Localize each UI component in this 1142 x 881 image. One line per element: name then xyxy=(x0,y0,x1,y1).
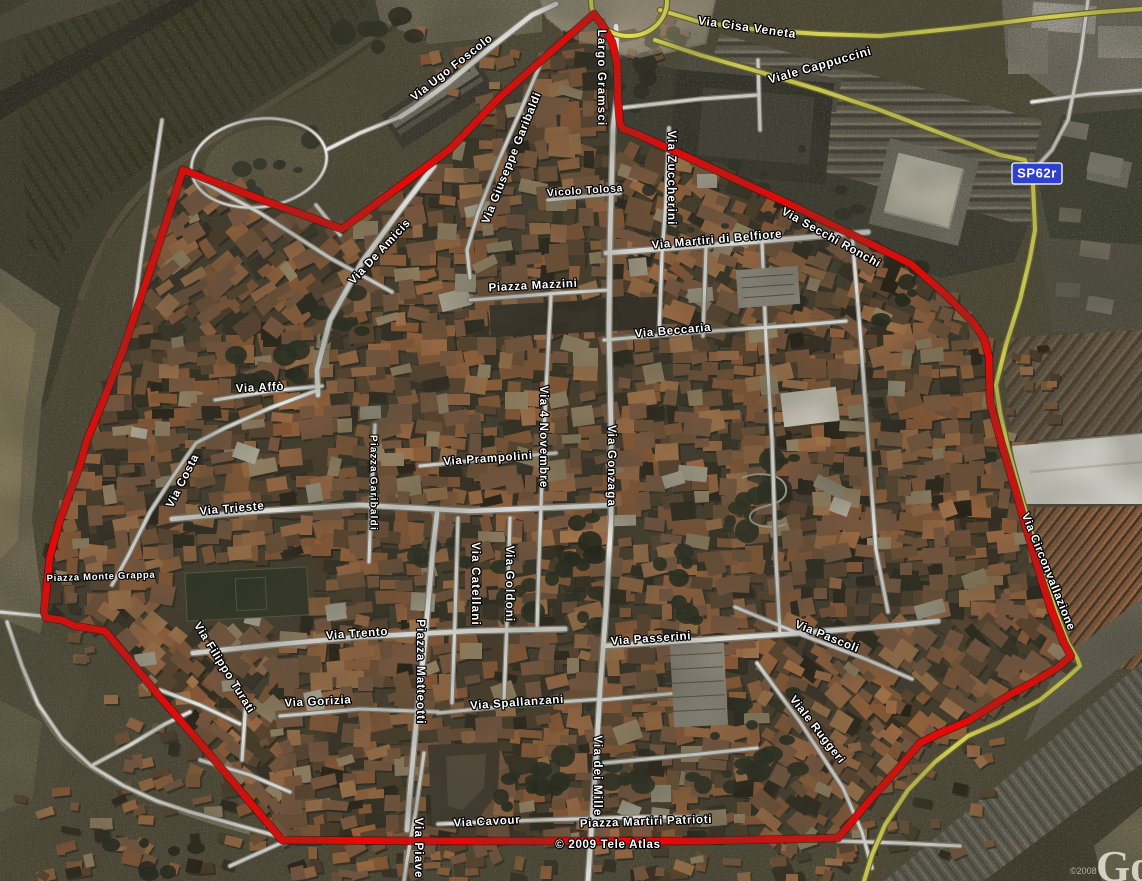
svg-text:Piazza Matteotti: Piazza Matteotti xyxy=(414,619,426,724)
svg-text:Via Gonzaga: Via Gonzaga xyxy=(605,425,617,507)
svg-text:Via 4 Novembre: Via 4 Novembre xyxy=(537,386,549,489)
svg-text:SP62r: SP62r xyxy=(1017,165,1057,180)
svg-text:Go: Go xyxy=(1096,842,1142,881)
svg-text:©2008: ©2008 xyxy=(1070,866,1097,876)
svg-text:Piazza Garibaldi: Piazza Garibaldi xyxy=(367,435,378,531)
svg-text:© 2009 Tele Atlas: © 2009 Tele Atlas xyxy=(555,839,660,851)
svg-text:Via Piave: Via Piave xyxy=(412,817,424,878)
svg-text:Via Zuccherini: Via Zuccherini xyxy=(665,130,677,225)
svg-text:Via Catellani: Via Catellani xyxy=(469,542,481,626)
svg-text:Via dei Mille: Via dei Mille xyxy=(591,735,603,816)
svg-text:Via Affò: Via Affò xyxy=(236,381,285,396)
svg-text:Largo Gramsci: Largo Gramsci xyxy=(595,30,607,127)
svg-text:Via Goldoni: Via Goldoni xyxy=(503,546,515,623)
